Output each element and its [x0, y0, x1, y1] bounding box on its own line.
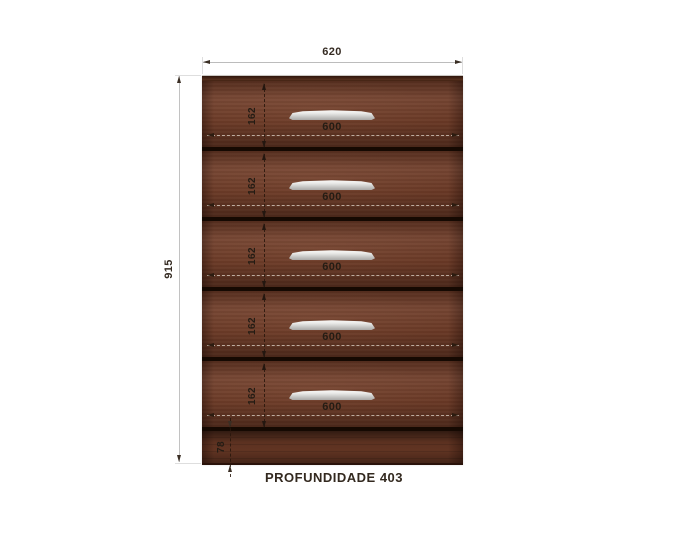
drawer-handle: [289, 320, 375, 330]
drawer-4: 162 600: [202, 291, 463, 361]
arrowhead-up-icon: [177, 76, 181, 83]
drawer-width-label: 600: [302, 121, 362, 133]
drawer-handle: [289, 250, 375, 260]
arrowhead-down-icon: [228, 421, 232, 428]
drawer-height-dimension-line: [264, 294, 265, 357]
height-dimension-line: [179, 76, 180, 462]
base-height-label: 78: [216, 435, 228, 459]
drawer-width-label: 600: [302, 331, 362, 343]
arrowhead-down-icon: [262, 141, 266, 148]
drawer-height-label: 162: [247, 381, 259, 411]
furniture-technical-drawing: 620 915 162 600 162: [0, 0, 675, 549]
height-extension-line-bottom: [175, 463, 201, 464]
drawer-width-dimension-line: [207, 345, 459, 346]
drawer-2: 162 600: [202, 151, 463, 221]
arrowhead-left-icon: [203, 60, 210, 64]
overall-width-label: 620: [302, 46, 362, 58]
drawer-width-dimension-line: [207, 275, 459, 276]
arrowhead-down-icon: [262, 211, 266, 218]
arrowhead-right-icon: [452, 343, 459, 347]
arrowhead-left-icon: [207, 133, 214, 137]
arrowhead-up-icon: [262, 223, 266, 230]
arrowhead-up-icon: [262, 83, 266, 90]
base-panel: [202, 431, 463, 465]
drawer-height-dimension-line: [264, 364, 265, 427]
drawer-height-label: 162: [247, 311, 259, 341]
arrowhead-up-icon: [262, 153, 266, 160]
arrowhead-right-icon: [452, 273, 459, 277]
arrowhead-right-icon: [452, 413, 459, 417]
drawer-height-label: 162: [247, 171, 259, 201]
arrowhead-left-icon: [207, 343, 214, 347]
drawer-width-dimension-line: [207, 135, 459, 136]
arrowhead-right-icon: [452, 203, 459, 207]
drawer-height-dimension-line: [264, 224, 265, 287]
drawer-handle: [289, 390, 375, 400]
arrowhead-up-icon: [262, 363, 266, 370]
drawer-height-label: 162: [247, 101, 259, 131]
overall-height-label: 915: [163, 249, 177, 289]
width-extension-line-right: [462, 57, 463, 74]
drawer-handle: [289, 180, 375, 190]
arrowhead-left-icon: [207, 203, 214, 207]
arrowhead-down-icon: [262, 421, 266, 428]
arrowhead-left-icon: [207, 273, 214, 277]
arrowhead-right-icon: [452, 133, 459, 137]
arrowhead-down-icon: [262, 281, 266, 288]
arrowhead-right-icon: [455, 60, 462, 64]
drawer-height-dimension-line: [264, 84, 265, 147]
drawer-width-dimension-line: [207, 415, 459, 416]
drawer-width-label: 600: [302, 261, 362, 273]
drawer-width-dimension-line: [207, 205, 459, 206]
drawer-width-label: 600: [302, 401, 362, 413]
arrowhead-down-icon: [177, 455, 181, 462]
drawer-1: 162 600: [202, 81, 463, 151]
arrowhead-left-icon: [207, 413, 214, 417]
drawer-3: 162 600: [202, 221, 463, 291]
drawer-height-label: 162: [247, 241, 259, 271]
width-dimension-line: [203, 62, 462, 63]
drawer-5: 162 600: [202, 361, 463, 431]
arrowhead-up-icon: [228, 465, 232, 472]
drawer-width-label: 600: [302, 191, 362, 203]
drawer-height-dimension-line: [264, 154, 265, 217]
cabinet: 162 600 162 600 162 600: [202, 75, 463, 464]
arrowhead-down-icon: [262, 351, 266, 358]
depth-label: PROFUNDIDADE 403: [234, 472, 434, 484]
arrowhead-up-icon: [262, 293, 266, 300]
drawer-handle: [289, 110, 375, 120]
